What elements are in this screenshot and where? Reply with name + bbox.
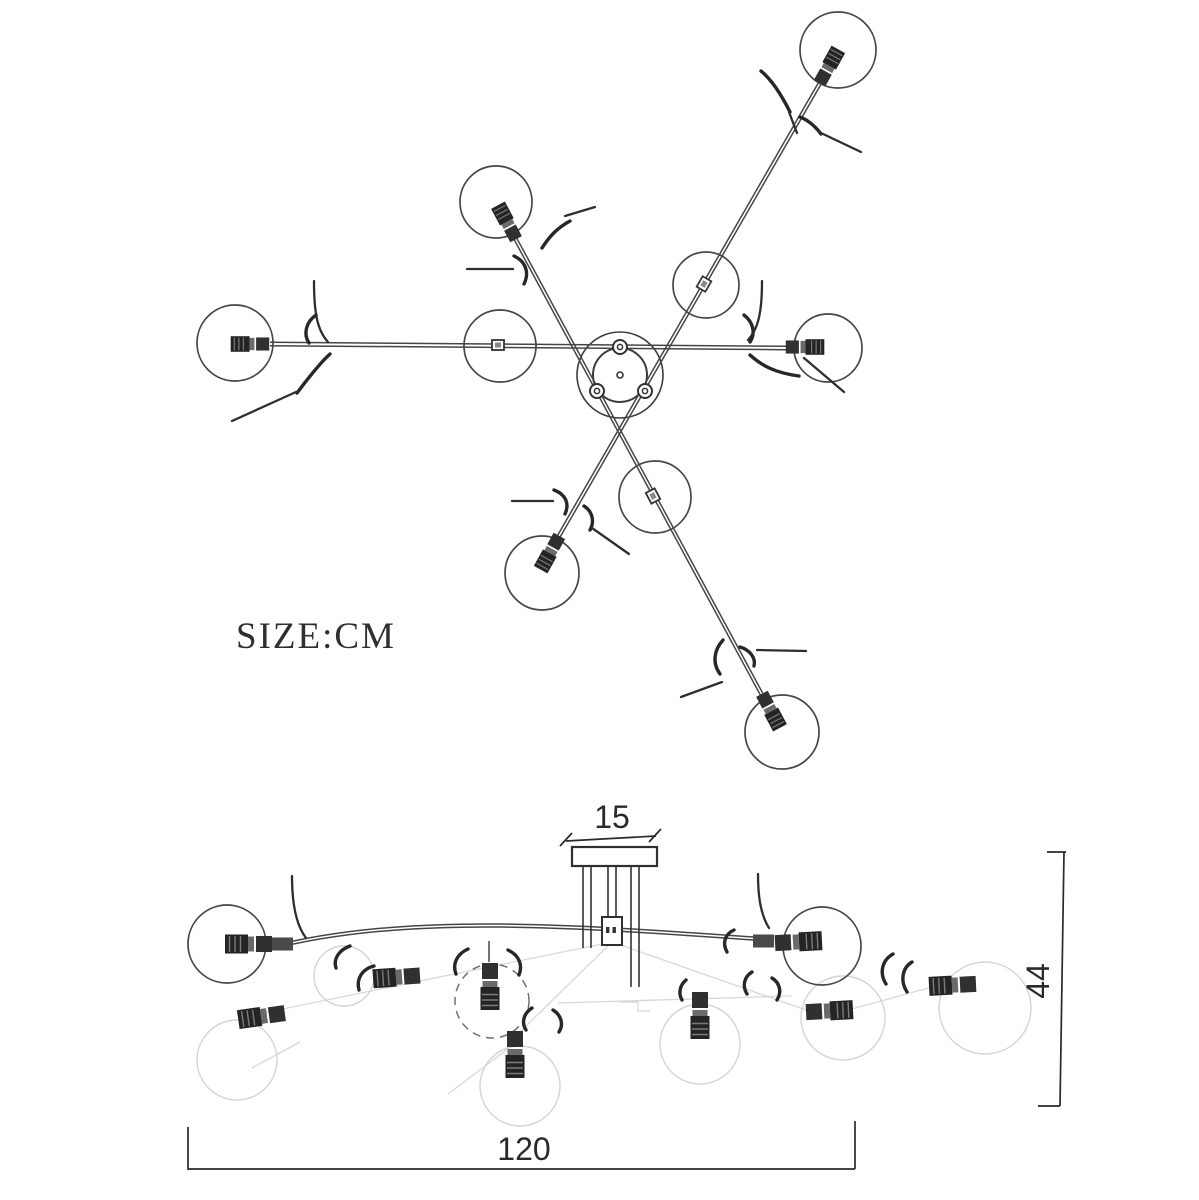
ghost-spheres [197, 946, 1031, 1126]
dim-label-120: 120 [497, 1131, 550, 1167]
dimensions: 15 44 120 SIZE:CM [188, 616, 1066, 1170]
lamp-socket-inner-left [372, 966, 420, 988]
branch-ornament-lower-left [512, 490, 629, 554]
canopy [572, 847, 657, 987]
dim-width: 120 [188, 1121, 855, 1170]
socket-top-right [813, 46, 845, 87]
hub-center-dot [617, 372, 623, 378]
canopy-plate [572, 847, 657, 866]
branch-ornament-right [744, 281, 844, 392]
socket-right [786, 339, 825, 355]
dim-height: 44 [1020, 852, 1066, 1106]
socket-lower-left [534, 532, 566, 573]
socket-left [231, 336, 270, 352]
dim-label-15: 15 [594, 799, 630, 835]
drop-rod-right [631, 866, 639, 987]
lamp-socket-inner-right [806, 1000, 854, 1021]
lamp-socket-far-right [929, 974, 977, 995]
drop-rod-left [583, 866, 591, 948]
drawing-page: 15 44 120 SIZE:CM [0, 0, 1199, 1200]
lamp-socket-center-down [481, 963, 500, 1010]
sphere-bottom-right [745, 695, 819, 769]
dim-label-44: 44 [1020, 963, 1056, 999]
side-socket-right-stem [753, 935, 774, 948]
branch-ornament-bottom-right [681, 640, 806, 697]
side-view [188, 847, 1031, 1126]
lamp-socket-right-down [691, 992, 710, 1039]
branch-ornament-upper-left [467, 207, 595, 284]
main-arm [293, 924, 753, 944]
arm-rod-ne-sw [558, 82, 822, 537]
lamp-socket-lower-center [506, 1031, 525, 1078]
arm-rod-horizontal [270, 342, 786, 349]
connector-box [602, 917, 622, 945]
branch-ornament-top-right [761, 71, 861, 152]
sphere-lower-left [505, 536, 579, 610]
arm-rod-nw-se [514, 237, 764, 695]
side-socket-right [775, 931, 823, 952]
drop-rod-middle [608, 866, 616, 917]
side-socket-left-stem [272, 938, 293, 951]
lamp-socket-lower-left [237, 1004, 286, 1029]
dim-canopy-width: 15 [560, 799, 661, 846]
sphere-upper-left [460, 166, 532, 238]
size-unit-label: SIZE:CM [236, 616, 396, 657]
side-socket-left [225, 935, 272, 954]
